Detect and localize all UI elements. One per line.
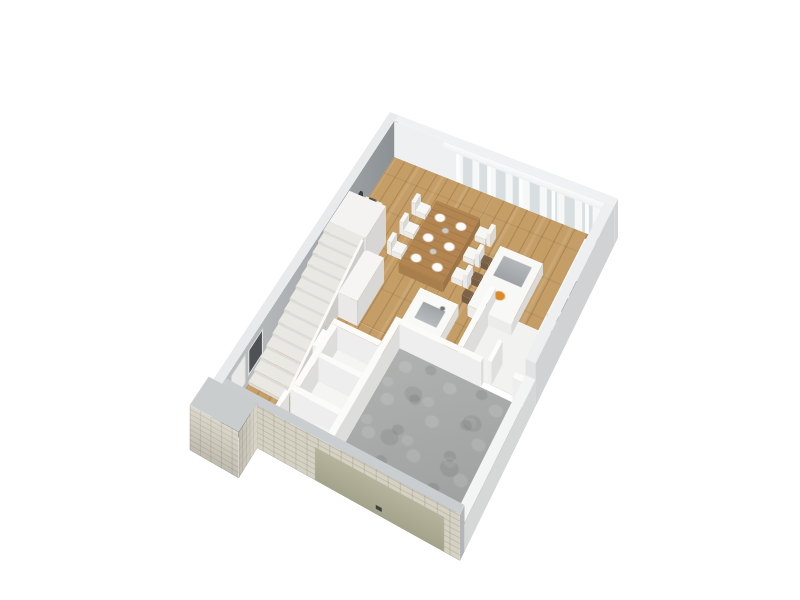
wall-north-side <box>615 198 618 244</box>
floor-plan-image <box>0 0 800 600</box>
